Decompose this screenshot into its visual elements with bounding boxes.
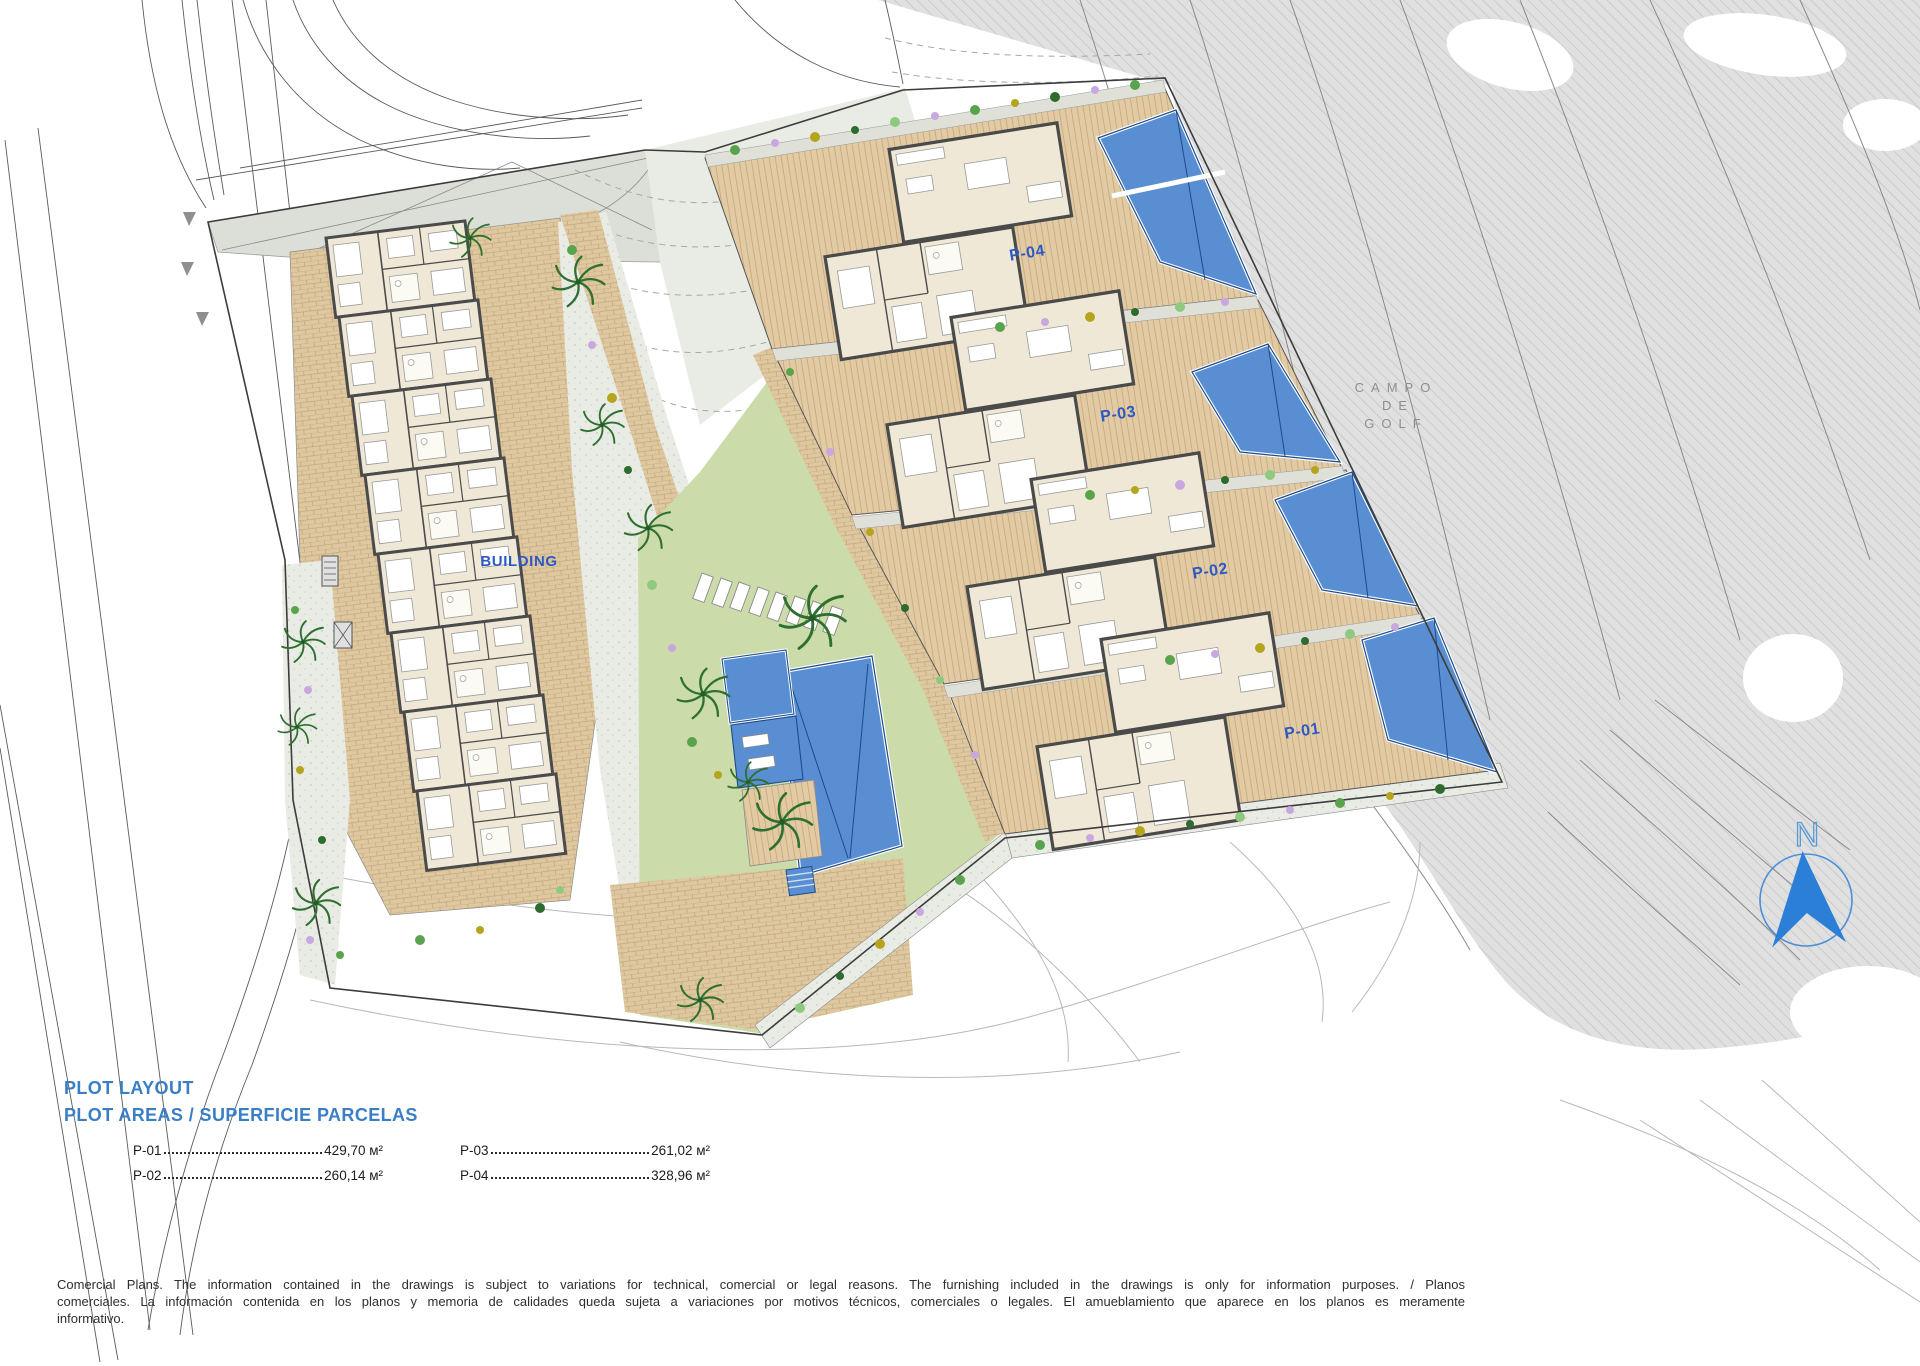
- plot-area-row-p03: P-03 261,02 м²: [460, 1133, 710, 1158]
- page-title: PLOT LAYOUT: [64, 1078, 194, 1099]
- pool-platform: [731, 716, 803, 788]
- pool-steps: [786, 866, 815, 895]
- golf-label-line-1: CAMPO: [1355, 380, 1438, 395]
- dotted-leader: [164, 1152, 323, 1154]
- plot-area-row-p02: P-02 260,14 м²: [133, 1158, 383, 1183]
- plot-id: P-02: [133, 1168, 162, 1183]
- plot-area-row-p01: P-01 429,70 м²: [133, 1133, 383, 1158]
- disclaimer-text: Comercial Plans. The information contain…: [57, 1276, 1465, 1327]
- page-subtitle: PLOT AREAS / SUPERFICIE PARCELAS: [64, 1105, 418, 1126]
- golf-label-line-2: DE: [1382, 398, 1414, 413]
- plot-areas-column-1: P-01 429,70 м² P-02 260,14 м²: [133, 1133, 383, 1183]
- plot-area-value: 260,14 м²: [324, 1168, 383, 1183]
- plot-id: P-01: [133, 1143, 162, 1158]
- plot-layout-sheet: CAMPO DE GOLF: [0, 0, 1920, 1366]
- dotted-leader: [491, 1177, 650, 1179]
- plot-area-value: 429,70 м²: [324, 1143, 383, 1158]
- dotted-leader: [164, 1177, 323, 1179]
- plot-area-row-p04: P-04 328,96 м²: [460, 1158, 710, 1183]
- dotted-leader: [491, 1152, 650, 1154]
- building-label: BUILDING: [480, 553, 557, 570]
- kids-pool: [722, 650, 794, 723]
- road-direction-arrows: [181, 212, 209, 326]
- plot-areas-column-2: P-03 261,02 м² P-04 328,96 м²: [460, 1133, 710, 1183]
- golf-label-line-3: GOLF: [1364, 416, 1427, 431]
- plot-id: P-04: [460, 1168, 489, 1183]
- plot-id: P-03: [460, 1143, 489, 1158]
- north-label: N: [1795, 816, 1820, 854]
- plot-area-value: 261,02 м²: [651, 1143, 710, 1158]
- plot-area-value: 328,96 м²: [651, 1168, 710, 1183]
